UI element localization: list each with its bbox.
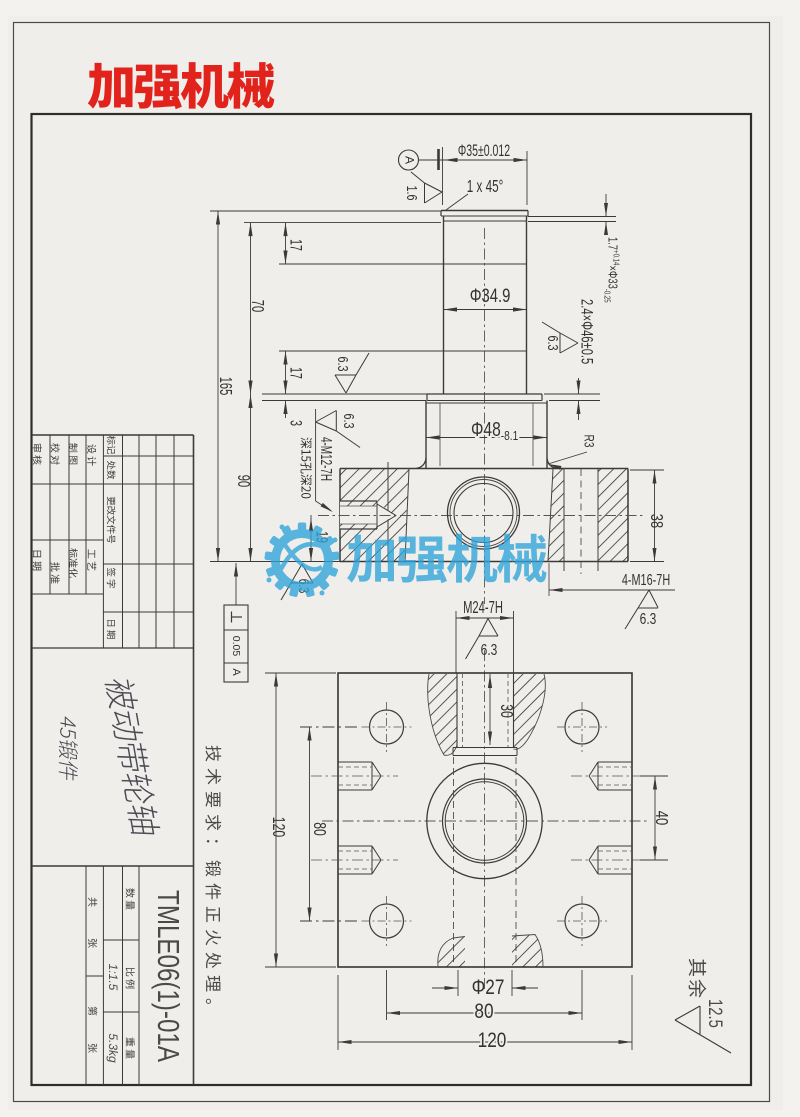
svg-text:5.3kg: 5.3kg xyxy=(106,1033,120,1063)
svg-text:4-M16-7H: 4-M16-7H xyxy=(622,571,670,589)
svg-text:TMLE06(1)-01A: TMLE06(1)-01A xyxy=(151,890,186,1062)
svg-text:38: 38 xyxy=(647,514,667,529)
svg-text:30: 30 xyxy=(497,704,517,718)
svg-text:6.3: 6.3 xyxy=(481,640,498,658)
svg-text:A: A xyxy=(230,668,242,676)
svg-text:1:1.5: 1:1.5 xyxy=(106,964,120,991)
svg-text:3: 3 xyxy=(287,420,306,426)
svg-text:17: 17 xyxy=(287,367,306,379)
svg-text:1 x 45°: 1 x 45° xyxy=(467,177,504,197)
svg-text:6.3: 6.3 xyxy=(545,336,562,351)
svg-text:6.3: 6.3 xyxy=(341,414,358,429)
svg-text:1.6: 1.6 xyxy=(404,186,421,201)
svg-text:6.3: 6.3 xyxy=(335,357,352,372)
svg-text:165: 165 xyxy=(215,377,235,396)
svg-text:2.4×Φ46±0.5: 2.4×Φ46±0.5 xyxy=(577,299,596,364)
svg-text:6.3: 6.3 xyxy=(640,609,657,627)
svg-text:120: 120 xyxy=(269,817,289,837)
svg-text:90: 90 xyxy=(233,475,253,487)
svg-text:4-M12-7H: 4-M12-7H xyxy=(317,437,335,481)
svg-text:0.05: 0.05 xyxy=(230,636,242,657)
svg-text:A: A xyxy=(402,156,416,164)
svg-text:80: 80 xyxy=(474,1001,493,1024)
svg-text:80: 80 xyxy=(310,822,330,836)
svg-text:12.5: 12.5 xyxy=(705,999,726,1028)
svg-text:Φ34.9: Φ34.9 xyxy=(470,285,511,306)
svg-text:Φ35±0.012: Φ35±0.012 xyxy=(458,140,510,159)
svg-text:70: 70 xyxy=(247,300,267,312)
svg-text:17: 17 xyxy=(287,239,306,251)
svg-text:R3: R3 xyxy=(581,435,597,448)
svg-text:M24-7H: M24-7H xyxy=(463,599,503,618)
svg-text:120: 120 xyxy=(478,1030,507,1053)
svg-text:Φ27: Φ27 xyxy=(472,977,505,1000)
svg-text:40: 40 xyxy=(652,811,672,826)
